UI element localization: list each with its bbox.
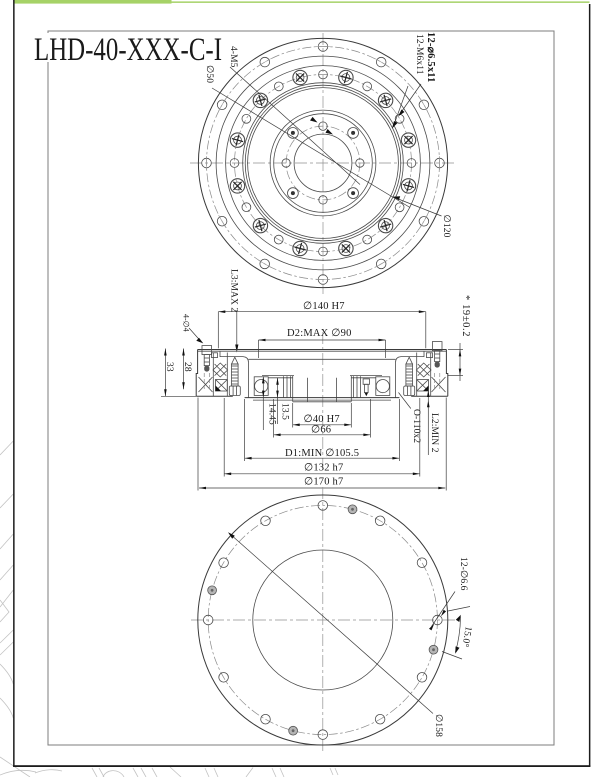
- svg-text:∅66: ∅66: [311, 425, 331, 436]
- svg-text:12-⌀6.5x11: 12-⌀6.5x11: [425, 32, 436, 83]
- svg-text:∅40 H7: ∅40 H7: [304, 414, 340, 425]
- svg-text:LHD-40-XXX-C-I: LHD-40-XXX-C-I: [34, 32, 222, 68]
- svg-text:L2:MIN 2: L2:MIN 2: [429, 413, 439, 453]
- svg-text:∅140 H7: ∅140 H7: [303, 301, 345, 312]
- svg-text:∅132 h7: ∅132 h7: [304, 463, 343, 474]
- svg-text:∅120: ∅120: [441, 215, 452, 238]
- svg-text:12-∅6.6: 12-∅6.6: [458, 557, 469, 591]
- svg-text:∅158: ∅158: [433, 714, 444, 737]
- svg-text:14.45: 14.45: [267, 403, 277, 425]
- svg-text:∅170 h7: ∅170 h7: [304, 477, 343, 488]
- svg-text:L3:MAX 2: L3:MAX 2: [229, 269, 239, 312]
- svg-text:* 19±0.2: * 19±0.2: [460, 295, 471, 337]
- svg-text:D2:MAX ∅90: D2:MAX ∅90: [287, 328, 352, 339]
- svg-text:13.5: 13.5: [280, 403, 290, 420]
- svg-text:D1:MIN ∅105.5: D1:MIN ∅105.5: [285, 448, 359, 459]
- svg-text:4-∅4: 4-∅4: [182, 314, 191, 332]
- svg-text:12-M6x11: 12-M6x11: [414, 34, 424, 75]
- svg-text:∅50: ∅50: [204, 65, 215, 83]
- svg-text:4-M5: 4-M5: [228, 46, 238, 68]
